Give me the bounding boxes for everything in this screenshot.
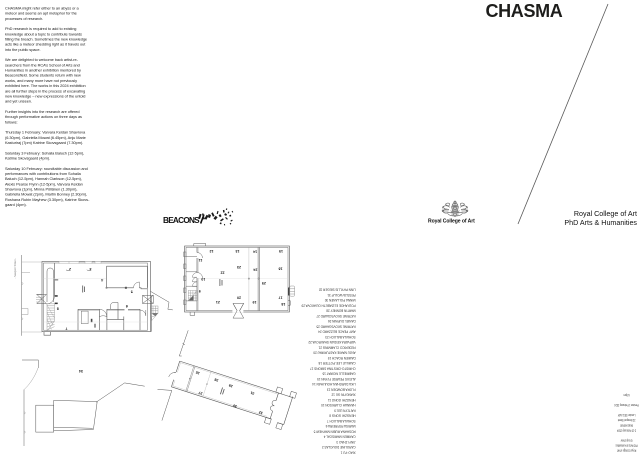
svg-text:13: 13 <box>236 249 240 253</box>
svg-text:26: 26 <box>195 370 200 375</box>
svg-text:31: 31 <box>250 391 255 396</box>
svg-text:6: 6 <box>126 304 128 308</box>
svg-text:27: 27 <box>198 390 203 395</box>
svg-text:14: 14 <box>253 249 257 253</box>
svg-text:9: 9 <box>199 289 201 293</box>
svg-text:24: 24 <box>253 268 257 272</box>
svg-text:30: 30 <box>233 403 238 408</box>
svg-text:25: 25 <box>262 281 266 285</box>
svg-text:29: 29 <box>228 383 233 388</box>
svg-text:21: 21 <box>216 300 220 304</box>
svg-text:18: 18 <box>281 302 285 306</box>
svg-text:28: 28 <box>214 377 219 382</box>
svg-text:7: 7 <box>65 326 67 330</box>
svg-text:22: 22 <box>221 271 225 275</box>
svg-text:16: 16 <box>279 267 283 271</box>
svg-text:- Newport Street -: - Newport Street - <box>13 258 17 279</box>
svg-text:32: 32 <box>258 410 263 415</box>
svg-text:11: 11 <box>199 258 203 262</box>
svg-text:15: 15 <box>279 249 283 253</box>
svg-text:10: 10 <box>201 277 205 281</box>
svg-text:19: 19 <box>253 300 257 304</box>
svg-text:8: 8 <box>57 306 59 310</box>
svg-text:34: 34 <box>79 369 83 373</box>
svg-text:17: 17 <box>279 296 283 300</box>
svg-text:12: 12 <box>210 249 214 253</box>
svg-text:23: 23 <box>237 265 241 269</box>
svg-text:4: 4 <box>101 278 103 282</box>
svg-text:20: 20 <box>237 296 241 300</box>
svg-text:5: 5 <box>131 289 133 293</box>
